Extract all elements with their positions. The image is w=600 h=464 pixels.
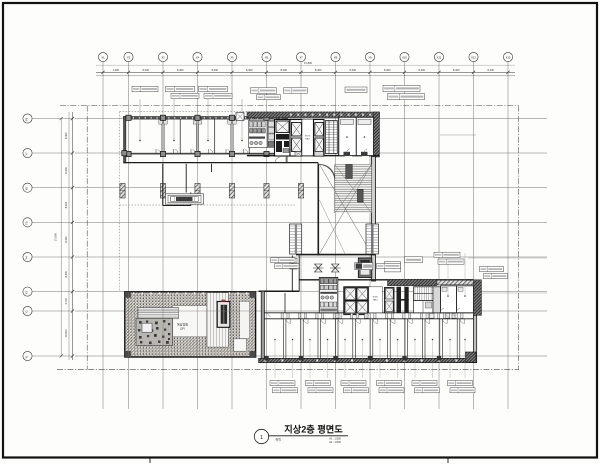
svg-text:8,400: 8,400 — [64, 236, 68, 243]
svg-text:X4: X4 — [196, 55, 200, 59]
svg-text:1: 1 — [260, 435, 263, 441]
svg-text:4,700: 4,700 — [64, 298, 68, 305]
svg-text:X3: X3 — [161, 55, 165, 59]
svg-text:HALL: HALL — [373, 299, 379, 302]
svg-text:8,400: 8,400 — [419, 68, 426, 72]
svg-text:Y7: Y7 — [25, 152, 29, 156]
svg-text:10,900: 10,900 — [64, 329, 68, 337]
svg-text:8,400: 8,400 — [281, 68, 288, 72]
svg-text:8,400: 8,400 — [177, 68, 184, 72]
svg-text:Y5: Y5 — [25, 221, 29, 225]
svg-text:Y8: Y8 — [25, 117, 29, 121]
svg-text:Y6: Y6 — [25, 187, 29, 191]
svg-text:X2: X2 — [127, 55, 131, 59]
svg-text:X5: X5 — [230, 55, 234, 59]
svg-text:A3 : 1/400: A3 : 1/400 — [329, 440, 341, 444]
svg-text:X6: X6 — [265, 55, 269, 59]
svg-text:Y3: Y3 — [25, 290, 29, 294]
svg-text:ELEV.: ELEV. — [373, 297, 379, 299]
svg-text:HALL: HALL — [305, 138, 311, 141]
svg-text:8,400: 8,400 — [453, 68, 460, 72]
svg-text:8,400: 8,400 — [64, 201, 68, 208]
svg-text:X7: X7 — [299, 55, 303, 59]
svg-text:8,400: 8,400 — [488, 68, 495, 72]
svg-text:X10: X10 — [402, 55, 407, 59]
svg-text:Y4: Y4 — [25, 256, 29, 260]
svg-text:8,400: 8,400 — [350, 68, 357, 72]
svg-text:옥상정원: 옥상정원 — [177, 322, 188, 327]
svg-text:(2F): (2F) — [180, 327, 185, 331]
svg-text:X1: X1 — [101, 55, 105, 59]
svg-text:8,400: 8,400 — [384, 68, 391, 72]
svg-text:축척 :: 축척 : — [275, 437, 282, 442]
svg-text:Y1: Y1 — [25, 355, 29, 359]
svg-text:57,600: 57,600 — [54, 232, 58, 240]
svg-text:8,400: 8,400 — [246, 68, 253, 72]
svg-text:Y2: Y2 — [25, 310, 29, 314]
svg-text:X8: X8 — [334, 55, 338, 59]
svg-text:8,400: 8,400 — [64, 271, 68, 278]
svg-text:1,400: 1,400 — [113, 68, 120, 72]
svg-text:8,400: 8,400 — [315, 68, 322, 72]
svg-text:X11: X11 — [437, 55, 442, 59]
svg-text:8,400: 8,400 — [64, 132, 68, 139]
svg-text:8,400: 8,400 — [143, 68, 150, 72]
svg-text:X13: X13 — [506, 55, 511, 59]
svg-text:8,400: 8,400 — [64, 167, 68, 174]
svg-text:ELEV.: ELEV. — [305, 136, 311, 138]
svg-text:X12: X12 — [471, 55, 476, 59]
svg-text:8,400: 8,400 — [212, 68, 219, 72]
svg-text:97,800: 97,800 — [304, 61, 312, 65]
svg-text:X9: X9 — [368, 55, 372, 59]
svg-text:지상2층 평면도: 지상2층 평면도 — [284, 423, 343, 434]
svg-text:A1 : 1/200: A1 : 1/200 — [329, 436, 341, 440]
